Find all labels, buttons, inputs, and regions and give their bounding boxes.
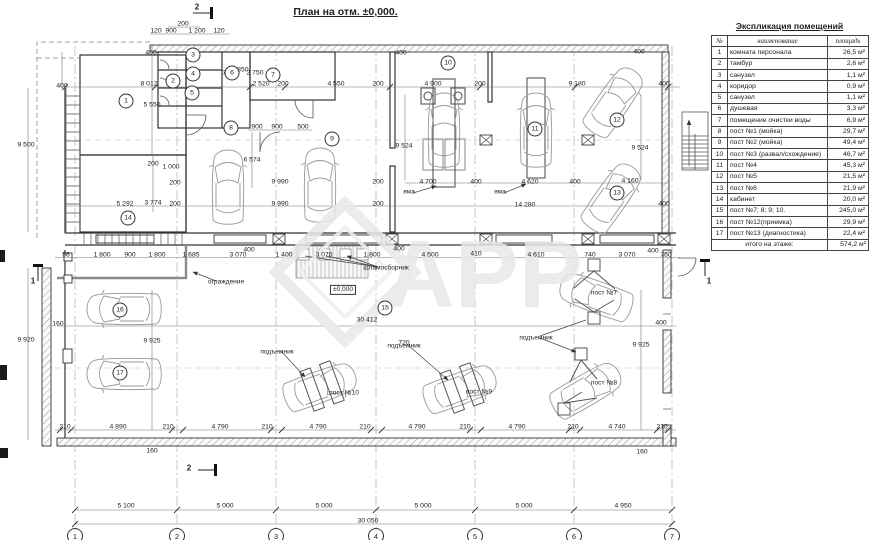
legend-cell: 245,0 м² <box>828 205 869 216</box>
legend-row: 6душевая3,3 м² <box>712 103 869 114</box>
canopy-outline <box>37 42 150 238</box>
legend-cell: 26,5 м² <box>828 47 869 58</box>
legend-cell: 0,9 м² <box>828 81 869 92</box>
legend-row: 17пост №13 (диагностика)22,4 м² <box>712 228 869 239</box>
legend-row: 3санузел1,1 м² <box>712 69 869 80</box>
legend-cell: пост №4 <box>728 160 828 171</box>
legend-cell: пост №3 (развал/схождение) <box>728 149 828 160</box>
jambs <box>0 250 72 458</box>
legend-table: № наименование площадь 1комната персонал… <box>711 35 869 251</box>
legend-cell: 17 <box>712 228 728 239</box>
legend-col-name: наименование <box>728 36 828 47</box>
fence-line <box>57 245 186 278</box>
legend-cell: 22,4 м² <box>828 228 869 239</box>
legend-title: Экспликация помещений <box>711 21 868 31</box>
legend-row: 13пост №621,9 м² <box>712 183 869 194</box>
legend-cell: 14 <box>712 194 728 205</box>
legend-cell: 11 <box>712 160 728 171</box>
legend-cell: 6,9 м² <box>828 115 869 126</box>
legend-cell: помещение очистки воды <box>728 115 828 126</box>
legend-cell: кабинет <box>728 194 828 205</box>
legend-cell: пост №6 <box>728 183 828 194</box>
watermark-text: APP <box>385 221 582 328</box>
legend-row: 8пост №1 (мойка)29,7 м² <box>712 126 869 137</box>
legend-row: 12пост №521,5 м² <box>712 171 869 182</box>
legend-row: 4коридор0,9 м² <box>712 81 869 92</box>
legend-cell: 8 <box>712 126 728 137</box>
stairs-right <box>682 112 708 170</box>
legend-cell: 10 <box>712 149 728 160</box>
legend-cell: пост №7; 8; 9; 10. <box>728 205 828 216</box>
legend-col-number: № <box>712 36 728 47</box>
legend-cell: 2 <box>712 58 728 69</box>
interior-walls <box>65 52 676 438</box>
legend-row: 9пост №2 (мойка)49,4 м² <box>712 137 869 148</box>
legend-cell: 21,9 м² <box>828 183 869 194</box>
wash-pits <box>421 78 545 187</box>
legend-cell: санузел <box>728 92 828 103</box>
legend-cell: пост №1 (мойка) <box>728 126 828 137</box>
legend-cell: 3,3 м² <box>828 103 869 114</box>
legend-footer-row: итого на этаже: 574,2 м² <box>712 239 869 250</box>
legend-cell: 20,0 м² <box>828 194 869 205</box>
legend-cell: 12 <box>712 171 728 182</box>
legend-cell: 29,9 м² <box>828 217 869 228</box>
legend-cell: 16 <box>712 217 728 228</box>
legend-cell: 1,1 м² <box>828 69 869 80</box>
legend-cell: 2,6 м² <box>828 58 869 69</box>
legend-cell: 6 <box>712 103 728 114</box>
legend-row: 11пост №445,3 м² <box>712 160 869 171</box>
legend-cell: пост №12(приемка) <box>728 217 828 228</box>
legend-cell: душевая <box>728 103 828 114</box>
page-title: План на отм. ±0,000. <box>258 6 433 18</box>
legend-total-label: итого на этаже: <box>712 239 828 250</box>
legend-cell: 21,5 м² <box>828 171 869 182</box>
legend-cell: 1 <box>712 47 728 58</box>
legend-cell: пост №2 (мойка) <box>728 137 828 148</box>
legend-col-area: площадь <box>828 36 869 47</box>
legend-cell: комната персонала <box>728 47 828 58</box>
legend-row: 16пост №12(приемка)29,9 м² <box>712 217 869 228</box>
legend-cell: коридор <box>728 81 828 92</box>
legend-cell: пост №5 <box>728 171 828 182</box>
legend-row: 1комната персонала26,5 м² <box>712 47 869 58</box>
sludge-collector <box>296 246 368 278</box>
legend-total-value: 574,2 м² <box>828 239 869 250</box>
legend-cell: 13 <box>712 183 728 194</box>
floor-plan-sheet: APP 2001209001 2001208 0122 5202004 5502… <box>0 0 870 540</box>
legend-row: 10пост №3 (развал/схождение)46,7 м² <box>712 149 869 160</box>
legend-cell: 1,1 м² <box>828 92 869 103</box>
legend-cell: 9 <box>712 137 728 148</box>
legend-cell: 49,4 м² <box>828 137 869 148</box>
legend-row: 7помещение очистки воды6,9 м² <box>712 115 869 126</box>
legend-cell: тамбур <box>728 58 828 69</box>
legend-cell: 3 <box>712 69 728 80</box>
legend-panel: Экспликация помещений № наименование пло… <box>711 21 868 251</box>
legend-row: 5санузел1,1 м² <box>712 92 869 103</box>
legend-cell: 29,7 м² <box>828 126 869 137</box>
legend-row: 2тамбур2,6 м² <box>712 58 869 69</box>
legend-cell: 15 <box>712 205 728 216</box>
legend-cell: пост №13 (диагностика) <box>728 228 828 239</box>
legend-header-row: № наименование площадь <box>712 36 869 47</box>
legend-cell: 4 <box>712 81 728 92</box>
legend-cell: 5 <box>712 92 728 103</box>
legend-cell: 46,7 м² <box>828 149 869 160</box>
legend-cell: 7 <box>712 115 728 126</box>
legend-cell: 45,3 м² <box>828 160 869 171</box>
legend-row: 14кабинет20,0 м² <box>712 194 869 205</box>
stairs-left <box>66 88 182 245</box>
legend-cell: санузел <box>728 69 828 80</box>
legend-row: 15пост №7; 8; 9; 10.245,0 м² <box>712 205 869 216</box>
